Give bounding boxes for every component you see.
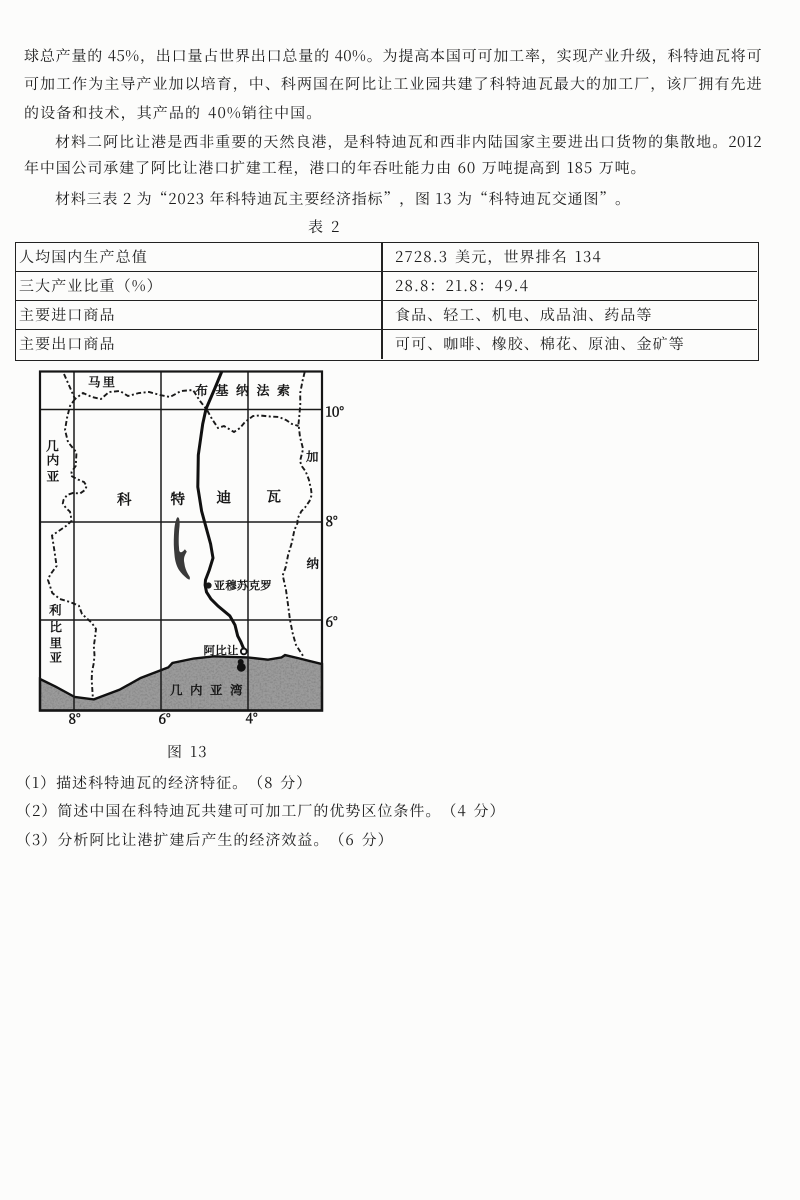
- svg-text:纳: 纳: [307, 554, 320, 572]
- svg-text:6°: 6°: [326, 611, 339, 631]
- svg-text:6°: 6°: [159, 708, 172, 728]
- svg-text:8°: 8°: [69, 708, 82, 728]
- svg-text:亚穆苏克罗: 亚穆苏克罗: [214, 578, 273, 594]
- svg-text:10°: 10°: [326, 401, 345, 421]
- svg-text:8°: 8°: [326, 510, 339, 530]
- svg-text:亚: 亚: [47, 466, 60, 485]
- svg-text:迪: 迪: [216, 487, 232, 508]
- svg-text:亚: 亚: [50, 648, 63, 666]
- svg-text:布基纳法索: 布基纳法索: [195, 380, 298, 399]
- svg-text:阿比让: 阿比让: [204, 643, 239, 659]
- svg-text:特: 特: [171, 488, 186, 509]
- svg-text:4°: 4°: [246, 707, 258, 727]
- svg-text:加: 加: [305, 447, 319, 465]
- svg-text:科: 科: [116, 489, 132, 510]
- svg-text:瓦: 瓦: [267, 486, 282, 507]
- svg-text:几内亚湾: 几内亚湾: [170, 681, 250, 699]
- svg-text:利: 利: [48, 601, 62, 619]
- svg-text:马里: 马里: [88, 373, 117, 391]
